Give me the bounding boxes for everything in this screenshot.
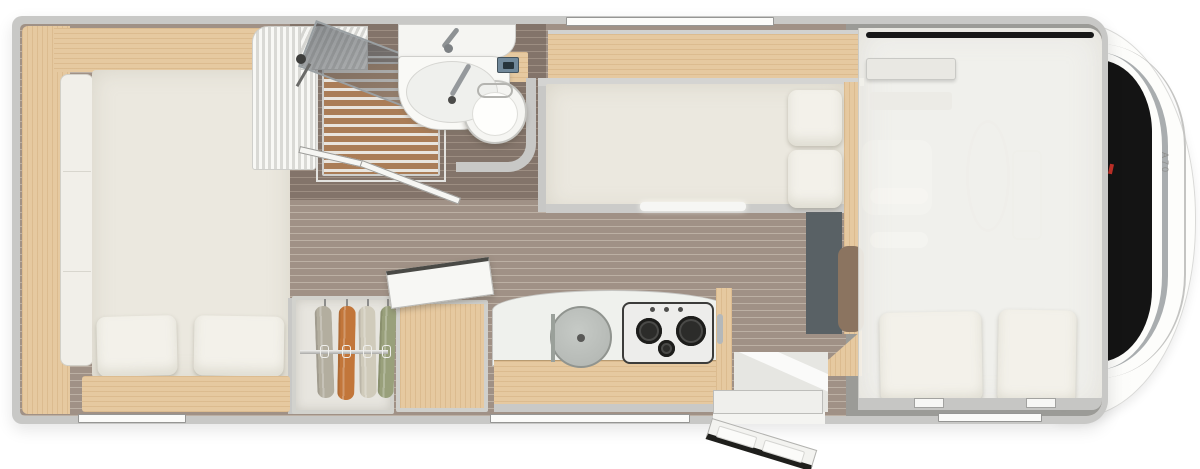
middle-bed-pillow bbox=[788, 150, 842, 208]
overhead-locker bbox=[548, 30, 858, 78]
kitchen-front-band bbox=[494, 360, 730, 406]
hob-burner bbox=[658, 340, 675, 357]
entrance-door-open bbox=[706, 418, 818, 469]
toilet-seat-handle bbox=[477, 83, 513, 98]
middle-bed-pillow bbox=[788, 90, 842, 146]
window-marker bbox=[566, 17, 774, 26]
tall-cupboard bbox=[60, 74, 94, 366]
door-step-rib bbox=[762, 439, 806, 463]
door-step-rib bbox=[716, 425, 758, 448]
motorhome-floorplan: A70 bbox=[0, 0, 1200, 469]
hob-knob bbox=[678, 307, 683, 312]
model-label: A70 bbox=[1160, 152, 1170, 174]
shower-head-icon bbox=[296, 54, 306, 64]
kitchen-faucet bbox=[717, 314, 723, 344]
overcab-shelf-small bbox=[870, 92, 952, 110]
windshield-top-strip bbox=[866, 32, 1094, 38]
midbed-light-notch bbox=[640, 202, 746, 211]
toilet-panel-screen bbox=[503, 62, 514, 69]
window-marker bbox=[490, 414, 690, 423]
hob-knob bbox=[650, 307, 655, 312]
window-marker bbox=[938, 413, 1042, 422]
overcab-latch-tab bbox=[914, 398, 944, 408]
washbasin-faucet-base bbox=[444, 44, 453, 53]
rail-clip bbox=[320, 345, 329, 358]
overcab-latch-tab bbox=[1026, 398, 1056, 408]
toilet-bowl-inner bbox=[472, 92, 518, 136]
cupboard-seam bbox=[63, 271, 91, 272]
step-well-dark bbox=[806, 212, 842, 334]
overcab-bed-pillow bbox=[997, 309, 1077, 404]
rear-bed-pillow bbox=[96, 315, 178, 377]
kitchen-plinth bbox=[494, 404, 730, 412]
overcab-bed-pillow bbox=[879, 311, 983, 403]
nose-trim-line bbox=[1100, 44, 1186, 378]
hob-burner bbox=[676, 316, 706, 346]
entry-step bbox=[713, 390, 823, 414]
rear-bed-footboard bbox=[82, 376, 290, 412]
washbasin-drain bbox=[448, 96, 456, 104]
overcab-shelf bbox=[866, 58, 956, 80]
cupboard-seam bbox=[63, 171, 91, 172]
rail-clip bbox=[382, 345, 391, 358]
rail-clip bbox=[363, 345, 372, 358]
hob-knob bbox=[664, 307, 669, 312]
bedroom-head-shelf bbox=[54, 28, 266, 72]
sink-lid-hinge bbox=[551, 314, 555, 362]
overcab-bed-edge-bar bbox=[858, 398, 1102, 410]
rail-clip bbox=[342, 345, 351, 358]
storage-chest bbox=[396, 300, 488, 412]
sink-lid-knob bbox=[577, 334, 585, 342]
hob-burner bbox=[636, 318, 662, 344]
toilet-control-panel bbox=[497, 57, 519, 73]
window-marker bbox=[78, 414, 186, 423]
rear-bed-pillow bbox=[193, 315, 284, 377]
